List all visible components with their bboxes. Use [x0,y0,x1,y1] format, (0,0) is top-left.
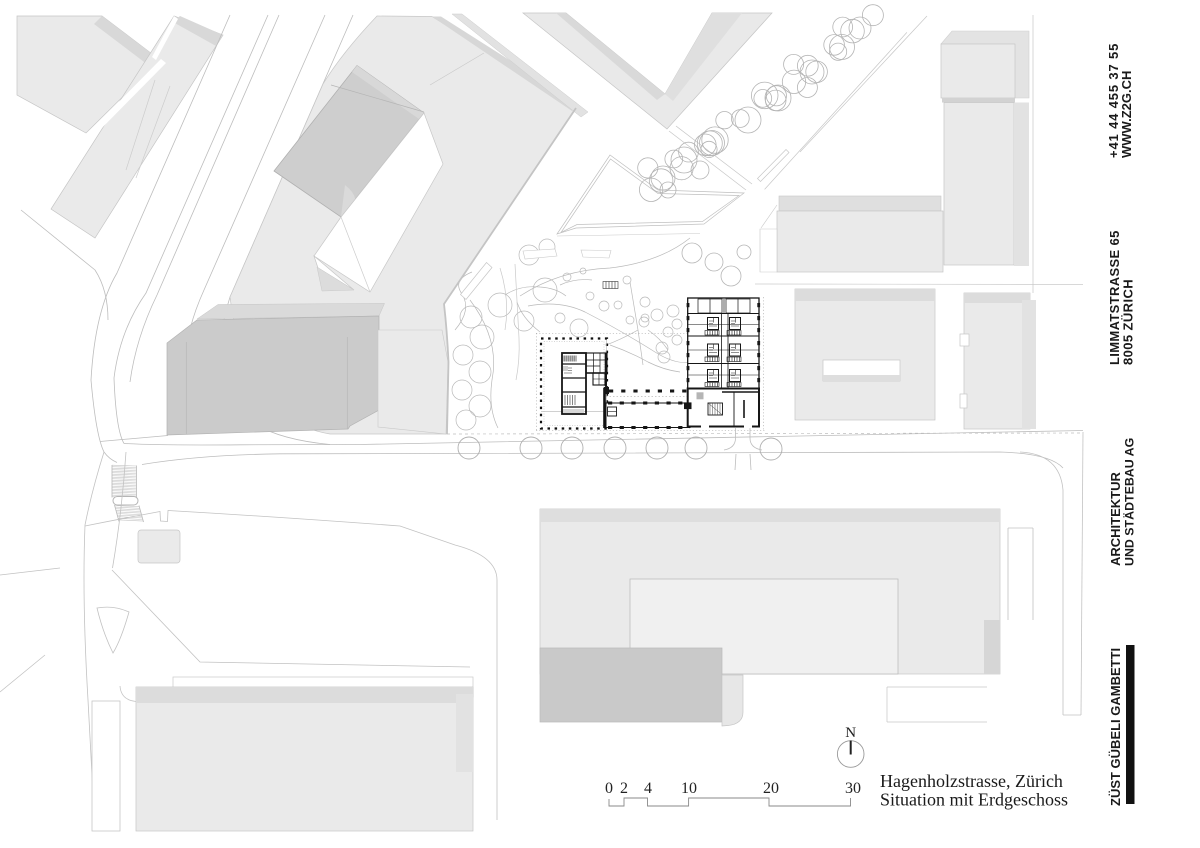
svg-text:Situation mit Erdgeschoss: Situation mit Erdgeschoss [880,790,1068,810]
svg-text:20: 20 [763,780,779,797]
svg-text:4: 4 [644,780,652,797]
svg-text:ZÜST GÜBELI GAMBETTI: ZÜST GÜBELI GAMBETTI [1108,648,1123,806]
svg-text:WWW.Z2G.CH: WWW.Z2G.CH [1119,71,1134,158]
svg-text:0: 0 [605,780,613,797]
svg-text:UND STÄDTEBAU AG: UND STÄDTEBAU AG [1122,438,1137,566]
svg-text:2: 2 [620,780,628,797]
svg-text:10: 10 [681,780,697,797]
svg-text:Hagenholzstrasse, Zürich: Hagenholzstrasse, Zürich [880,771,1063,791]
svg-text:ARCHITEKTUR: ARCHITEKTUR [1108,472,1123,566]
svg-text:30: 30 [845,780,861,797]
svg-text:N: N [845,725,856,741]
svg-text:8005 ZÜRICH: 8005 ZÜRICH [1121,279,1136,365]
